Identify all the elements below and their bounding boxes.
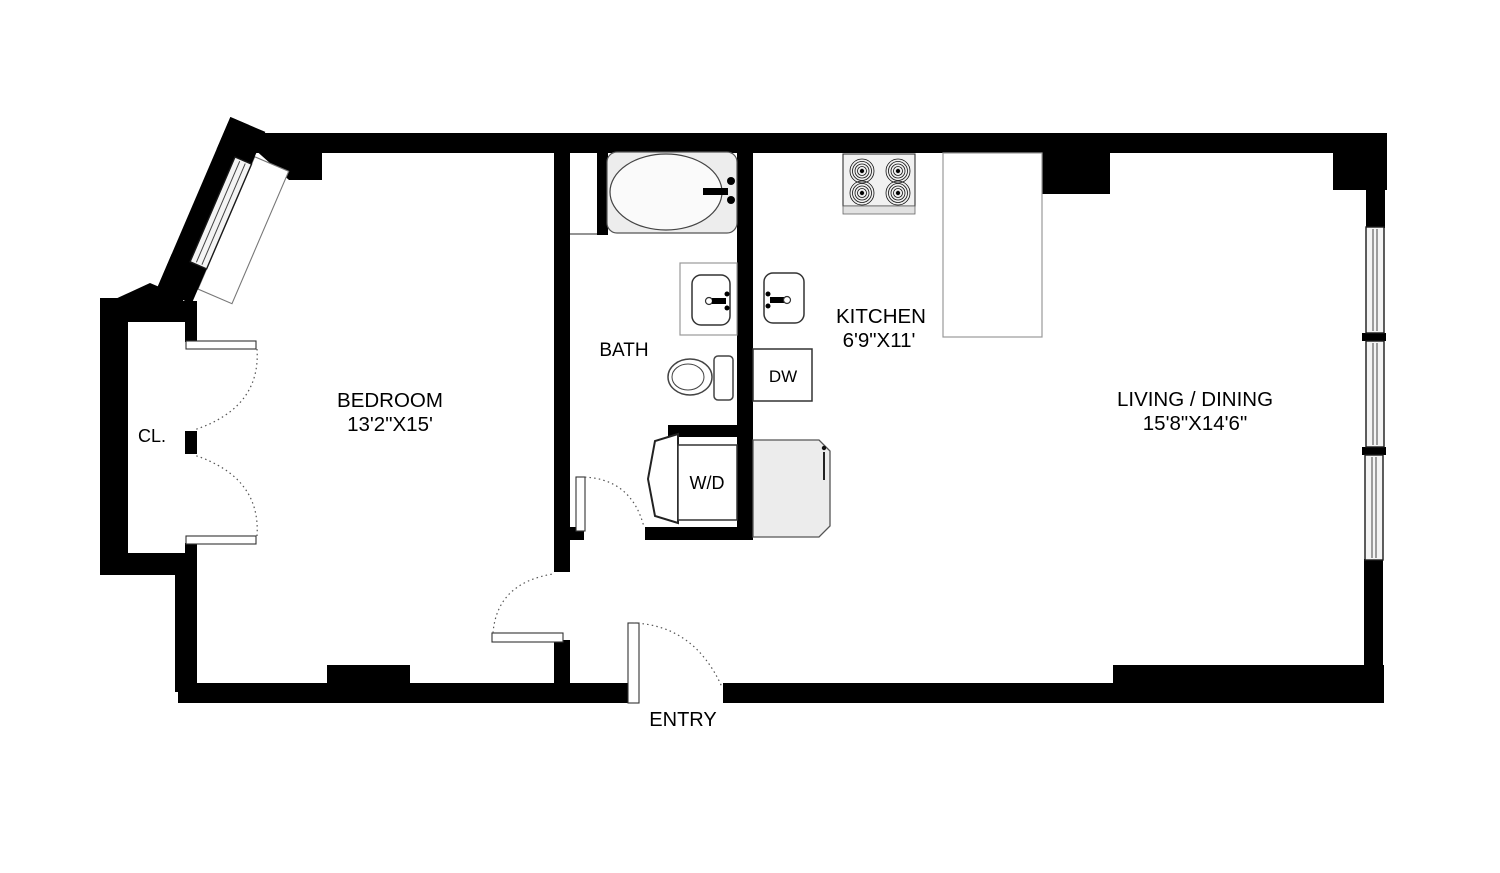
tub-side-stub <box>597 152 608 235</box>
stove-front-strip <box>843 206 915 214</box>
living-label: LIVING / DINING <box>1117 388 1273 411</box>
bathtub-faucet <box>703 188 728 195</box>
bottom-wall-pilaster <box>327 665 410 683</box>
washer-dryer-label: W/D <box>690 473 725 493</box>
bath-label: BATH <box>599 340 648 361</box>
top-wall <box>245 133 1387 153</box>
right-wall-upper <box>1366 188 1385 228</box>
bedroom-east-wall-upper <box>554 152 570 572</box>
bedroom-door-leaf <box>492 633 563 642</box>
bathtub-knob-1 <box>727 177 735 185</box>
bedroom-dims: 13'2"X15' <box>347 413 433 436</box>
refrigerator <box>753 440 830 537</box>
bath-sink-faucet <box>712 298 726 304</box>
bath-sink-knob-2 <box>725 306 730 311</box>
window-2 <box>1366 341 1384 447</box>
bedroom-label: BEDROOM <box>337 389 443 412</box>
living-windows <box>1365 227 1384 560</box>
kitchen-dims: 6'9"X11' <box>843 329 916 352</box>
window-3 <box>1365 455 1383 560</box>
bathtub-knob-2 <box>727 196 735 204</box>
wd-closet-door <box>648 434 678 523</box>
top-right-corner-block <box>1333 133 1387 190</box>
window-separator-1 <box>1362 333 1386 341</box>
toilet-tank <box>714 356 733 400</box>
bath-sink-knob-1 <box>725 292 730 297</box>
bottom-wall-living <box>1113 665 1384 703</box>
entry-door-leaf <box>628 623 639 703</box>
closet-center-stub <box>185 431 197 454</box>
kitchen-sink-knob-1 <box>766 292 771 297</box>
bath-door-leaf <box>576 477 585 531</box>
bedroom-east-wall-lower <box>554 640 570 692</box>
kitchen-counter-peninsula <box>943 153 1042 337</box>
right-wall-lower <box>1364 559 1383 667</box>
kitchen-sink-knob-2 <box>766 304 771 309</box>
kitchen-label: KITCHEN <box>836 305 926 328</box>
closet-door-top-leaf <box>186 341 256 349</box>
kitchen-living-wall-stub <box>1042 153 1110 194</box>
window-1 <box>1366 227 1384 333</box>
bath-sink-drain <box>706 298 713 305</box>
closet-door-bottom-swing <box>194 455 257 536</box>
entry-label: ENTRY <box>649 709 716 731</box>
bath-kitchen-wall <box>737 133 753 540</box>
floor-plan: BEDROOM 13'2"X15' BATH KITCHEN 6'9"X11' … <box>0 0 1500 873</box>
window-separator-2 <box>1362 447 1386 455</box>
closet-door-top-swing <box>194 349 257 430</box>
doors <box>186 341 722 703</box>
entry-door-swing <box>633 623 722 687</box>
closet-jamb-top <box>185 322 197 342</box>
kitchen-sink-faucet <box>770 297 784 303</box>
bath-south-wall <box>645 527 753 540</box>
closet-label: CL. <box>138 426 166 446</box>
bottom-wall-mid <box>723 683 1114 703</box>
living-dims: 15'8"X14'6" <box>1143 412 1247 435</box>
dishwasher-label: DW <box>769 367 797 386</box>
bath-fixtures <box>570 152 737 523</box>
floor-plan-canvas: BEDROOM 13'2"X15' BATH KITCHEN 6'9"X11' … <box>0 0 1500 873</box>
closet-jamb-bottom <box>185 543 197 554</box>
closet-door-bottom-leaf <box>186 536 256 544</box>
kitchen-sink-drain <box>784 297 791 304</box>
left-outer-wall <box>100 298 128 575</box>
refrigerator-handle-knob <box>822 446 826 450</box>
bedroom-door-swing <box>493 574 553 633</box>
bedroom-west-wall-lower <box>175 575 197 692</box>
bath-door-swing <box>580 477 644 527</box>
